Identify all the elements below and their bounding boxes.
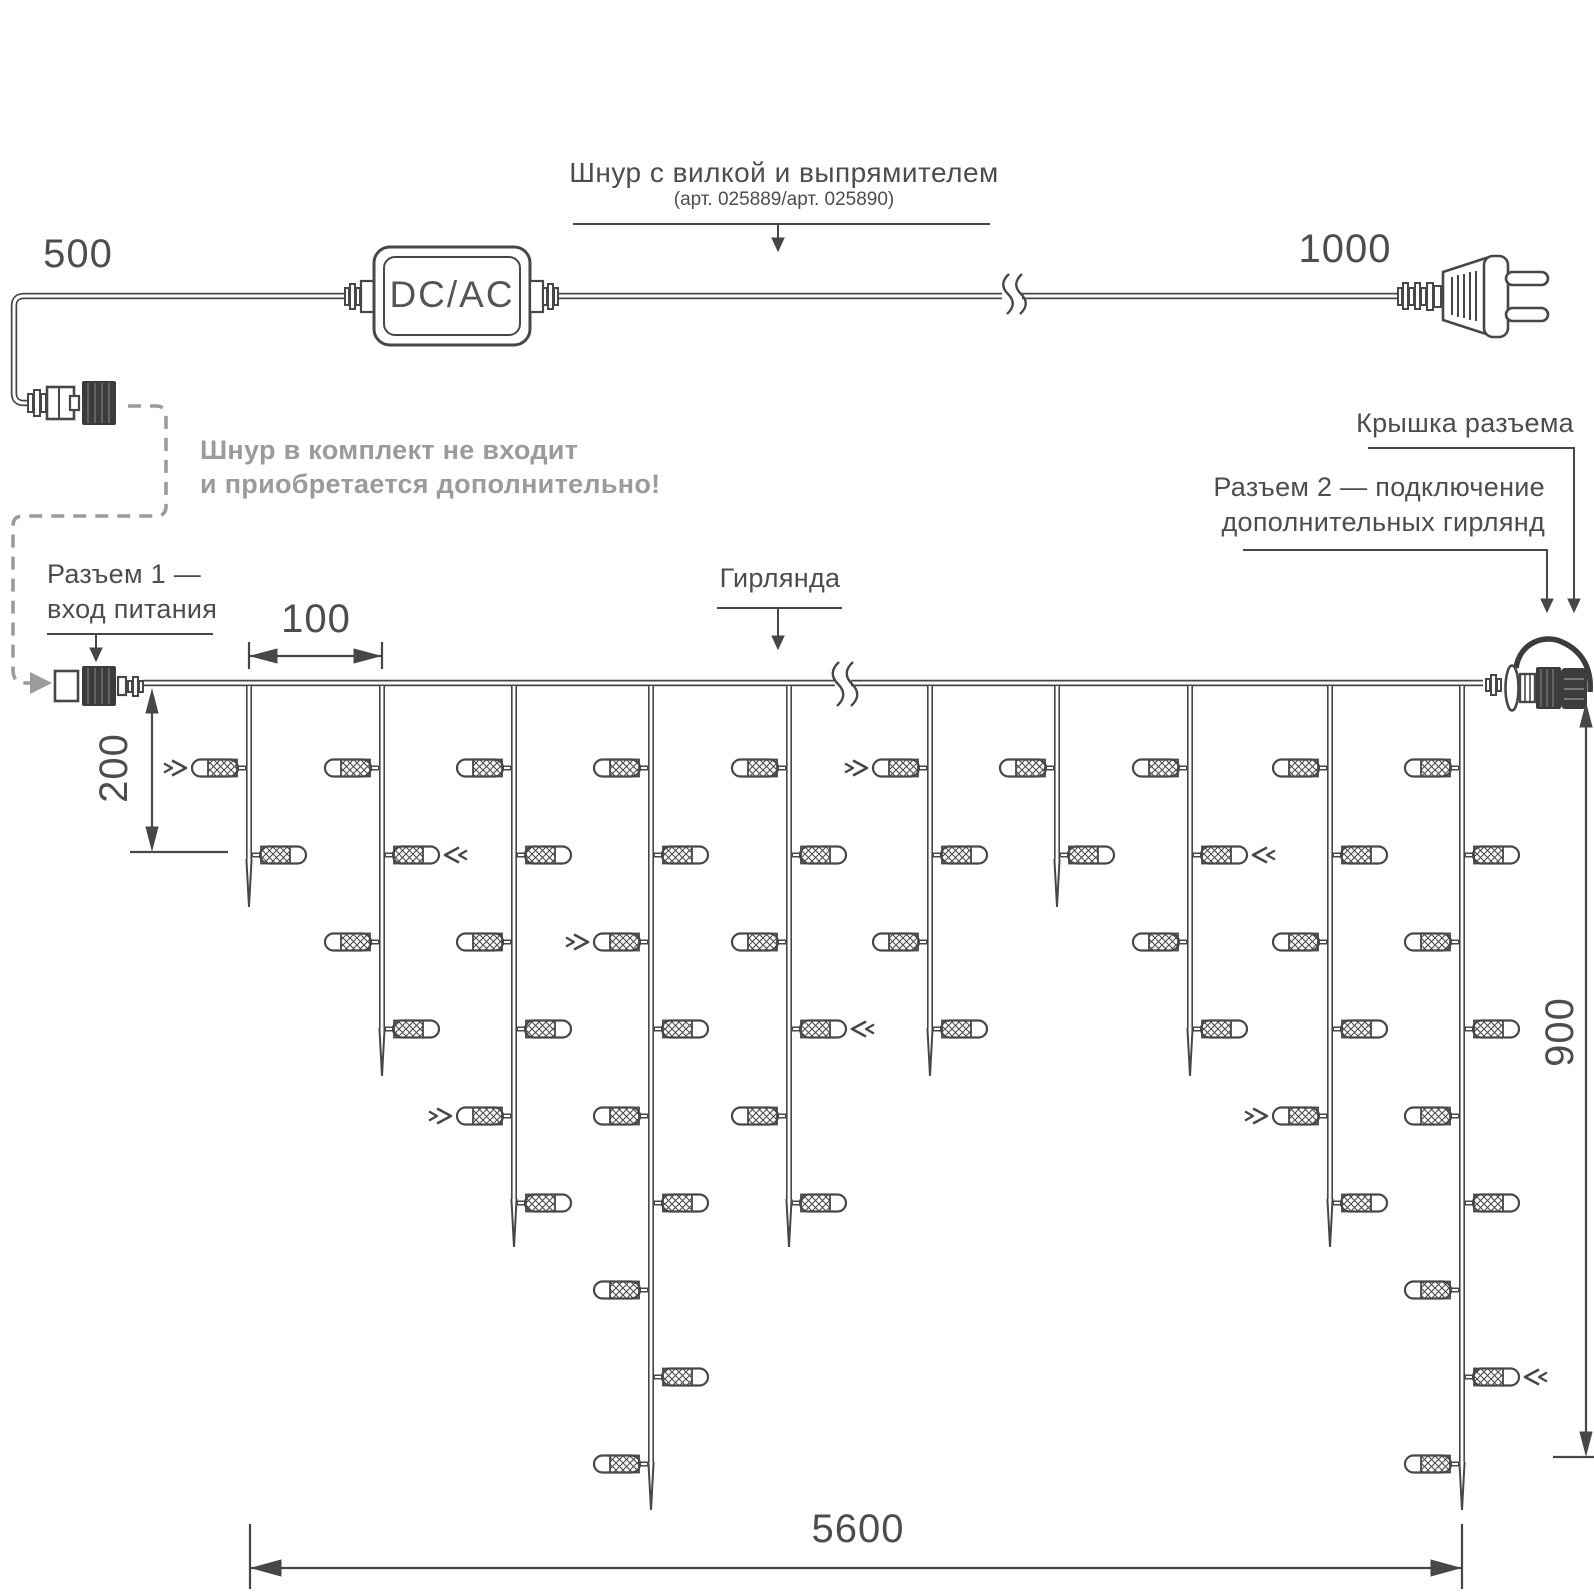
flash-arrow-icon — [164, 761, 186, 776]
dim-200-label: 200 — [94, 733, 134, 803]
drop-tip — [648, 1462, 653, 1510]
dim-1000-label: 1000 — [1299, 229, 1392, 269]
bulb-icon — [516, 847, 571, 864]
bulb-icon — [653, 1369, 708, 1386]
bulb-icon — [1273, 760, 1328, 777]
connector2-label-line2: дополнительных гирлянд — [1221, 509, 1545, 536]
cable-break-icon — [1003, 274, 1013, 314]
bulb-icon — [457, 760, 512, 777]
bulb-icon — [1273, 934, 1328, 951]
bulb-icon — [457, 1108, 512, 1125]
dim-100-label: 100 — [281, 599, 351, 639]
note-line-1: Шнур в комплект не входит — [200, 437, 578, 464]
bulb-icon — [1133, 934, 1188, 951]
bulb-icon — [1332, 1021, 1387, 1038]
connector2-label-line1: Разъем 2 — подключение — [1213, 474, 1545, 501]
connector-2 — [1486, 639, 1590, 710]
drop-tip — [1327, 1199, 1332, 1247]
bulb-icon — [384, 847, 439, 864]
drop-tip — [1054, 859, 1059, 907]
drop-tip — [1187, 1028, 1192, 1076]
bulb-icon — [594, 760, 649, 777]
subtitle: (арт. 025889/арт. 025890) — [674, 190, 894, 209]
flash-arrow-icon — [852, 1022, 874, 1037]
garland-label: Гирлянда — [720, 565, 841, 592]
bulb-icon — [1405, 1108, 1460, 1125]
connector-1 — [55, 666, 143, 706]
bulb-icon — [932, 1021, 987, 1038]
title-pointer — [573, 224, 990, 251]
cord-connector — [28, 381, 116, 425]
drop-tip — [246, 859, 251, 907]
bulb-icon — [251, 847, 306, 864]
converter-label: DC/AC — [389, 276, 514, 313]
garland-drop — [325, 685, 467, 1077]
drop-tip — [1459, 1462, 1464, 1510]
bulb-icon — [873, 934, 928, 951]
bulb-icon — [1332, 847, 1387, 864]
flash-arrow-icon — [429, 1109, 451, 1124]
dim-5600-label: 5600 — [812, 1509, 905, 1549]
bulb-icon — [1192, 1021, 1247, 1038]
garland-drop — [1133, 685, 1275, 1077]
connector1-label-line2: вход питания — [47, 596, 217, 623]
bulb-icon — [791, 847, 846, 864]
bulb-icon — [594, 934, 649, 951]
flash-arrow-icon — [566, 935, 588, 950]
bulb-icon — [594, 1108, 649, 1125]
garland-drop — [1405, 685, 1547, 1511]
bulb-icon — [653, 847, 708, 864]
bulb-icon — [516, 1021, 571, 1038]
bulb-icon — [932, 847, 987, 864]
title: Шнур с вилкой и выпрямителем — [569, 159, 999, 187]
connector1-label-line1: Разъем 1 — — [47, 561, 201, 588]
bulb-icon — [457, 934, 512, 951]
bulb-icon — [732, 934, 787, 951]
dim-900 — [1553, 704, 1594, 1457]
bulb-icon — [594, 1456, 649, 1473]
flash-arrow-icon — [445, 848, 467, 863]
bulb-icon — [192, 760, 247, 777]
drop-tip — [786, 1199, 791, 1247]
flash-arrow-icon — [1245, 1109, 1267, 1124]
note-line-2: и приобретается дополнительно! — [200, 471, 660, 498]
flash-arrow-icon — [1525, 1370, 1547, 1385]
dim-100 — [249, 642, 382, 669]
dim-900-label: 900 — [1540, 997, 1580, 1067]
bulb-icon — [516, 1195, 571, 1212]
bulb-icon — [653, 1195, 708, 1212]
garland-drop — [566, 685, 708, 1511]
bulb-icon — [1464, 1021, 1519, 1038]
bulb-icon — [653, 1021, 708, 1038]
bulb-icon — [384, 1021, 439, 1038]
garland-drops — [164, 685, 1547, 1511]
drop-tip — [511, 1199, 516, 1247]
power-plug-icon — [1398, 256, 1548, 337]
bulb-icon — [1405, 934, 1460, 951]
drop-tip — [927, 1028, 932, 1076]
bulb-icon — [1405, 760, 1460, 777]
bulb-icon — [732, 760, 787, 777]
bulb-icon — [1405, 1282, 1460, 1299]
garland-wire — [143, 662, 1483, 706]
bulb-icon — [1273, 1108, 1328, 1125]
garland-drop — [1245, 685, 1387, 1248]
bulb-icon — [1464, 847, 1519, 864]
garland-drop — [164, 685, 306, 908]
flash-arrow-icon — [1253, 848, 1275, 863]
bulb-icon — [1059, 847, 1114, 864]
cap-label: Крышка разъема — [1356, 410, 1574, 437]
grey-arrow-icon — [30, 672, 52, 694]
bulb-icon — [325, 934, 380, 951]
bulb-icon — [791, 1021, 846, 1038]
garland-drop — [845, 685, 987, 1077]
bulb-icon — [1133, 760, 1188, 777]
bulb-icon — [325, 760, 380, 777]
bulb-icon — [1192, 847, 1247, 864]
bulb-icon — [1464, 1195, 1519, 1212]
bulb-icon — [1464, 1369, 1519, 1386]
bulb-icon — [1000, 760, 1055, 777]
garland-pointer — [717, 608, 842, 649]
bulb-icon — [873, 760, 928, 777]
diagram-canvas: Шнур с вилкой и выпрямителем (арт. 02588… — [0, 0, 1594, 1594]
connector2-pointer — [1243, 550, 1553, 612]
dim-500-label: 500 — [43, 234, 113, 274]
garland-drop — [429, 685, 571, 1248]
drop-tip — [379, 1028, 384, 1076]
bulb-icon — [732, 1108, 787, 1125]
dimension-lines — [130, 642, 1594, 1589]
bulb-icon — [791, 1195, 846, 1212]
connector1-pointer — [47, 634, 213, 661]
bulb-icon — [594, 1282, 649, 1299]
flash-arrow-icon — [845, 761, 867, 776]
garland-drop — [1000, 685, 1114, 908]
bulb-icon — [1332, 1195, 1387, 1212]
dashed-connection-path — [13, 406, 166, 694]
bulb-icon — [1405, 1456, 1460, 1473]
cord-1000 — [556, 274, 1400, 314]
